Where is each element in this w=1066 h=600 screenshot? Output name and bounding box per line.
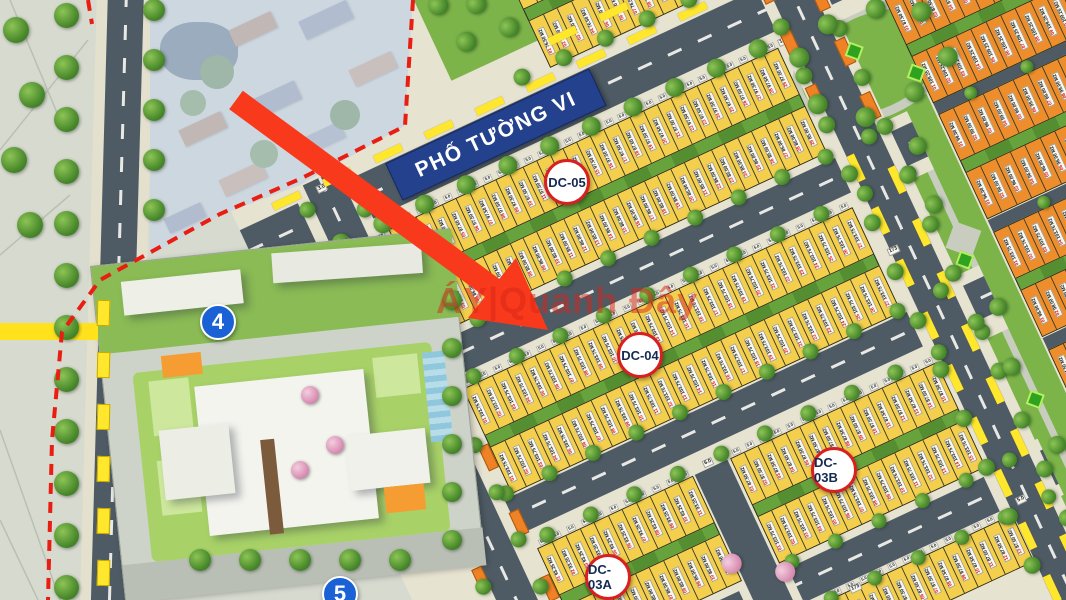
orange-building xyxy=(384,483,426,513)
zone-badge-dc04: DC-04 xyxy=(617,332,663,378)
tree-icon xyxy=(54,471,79,496)
pink-tree-icon xyxy=(301,386,319,404)
pink-tree-icon xyxy=(291,461,309,479)
tree-icon xyxy=(54,367,79,392)
parking-stall xyxy=(97,404,111,430)
tree-icon xyxy=(442,338,462,358)
tree-icon xyxy=(442,530,462,550)
tree-icon xyxy=(19,82,45,108)
tree-icon xyxy=(442,434,462,454)
tree-icon xyxy=(143,99,165,121)
tree-icon xyxy=(442,386,462,406)
tree-icon xyxy=(54,575,79,600)
pink-tree-icon xyxy=(326,436,344,454)
tree-icon xyxy=(54,107,79,132)
tree-icon xyxy=(289,549,311,571)
entrance-bar xyxy=(0,323,98,340)
tree-icon xyxy=(143,49,165,71)
tree-icon xyxy=(54,55,79,80)
parking-stall xyxy=(97,560,111,586)
tree-icon xyxy=(54,419,79,444)
zone-badge-dc03b: DC-03B xyxy=(811,447,857,493)
tree-icon xyxy=(17,212,43,238)
tree-icon xyxy=(389,549,411,571)
parking-stall xyxy=(97,456,111,482)
tree-icon xyxy=(442,482,462,502)
tree-icon xyxy=(239,549,261,571)
parking-stall xyxy=(97,352,111,378)
tree-icon xyxy=(143,199,165,221)
tree-icon xyxy=(1,147,27,173)
zone-badge-dc05: DC-05 xyxy=(544,159,590,205)
tree-icon xyxy=(54,159,79,184)
tree-icon xyxy=(143,149,165,171)
zone-badge-dc03a: DC-03A xyxy=(585,554,631,600)
watermark: ÁY|Quanh Đây xyxy=(436,280,698,322)
parking-stall xyxy=(97,300,111,326)
tree-icon xyxy=(54,315,79,340)
tree-icon xyxy=(3,17,29,43)
orange-building xyxy=(161,352,203,378)
marker-badge-4: 4 xyxy=(200,304,236,340)
masterplan-map: PHỐ TƯỜNG VI 01 76.50 M202 76.50 M203 76… xyxy=(0,0,1066,600)
tree-icon xyxy=(54,523,79,548)
tree-icon xyxy=(143,0,165,21)
tree-icon xyxy=(54,3,79,28)
tree-icon xyxy=(339,549,361,571)
tree-icon xyxy=(54,211,79,236)
campus xyxy=(90,228,485,600)
tree-icon xyxy=(54,263,79,288)
tree-icon xyxy=(189,549,211,571)
parking-stall xyxy=(97,508,111,534)
